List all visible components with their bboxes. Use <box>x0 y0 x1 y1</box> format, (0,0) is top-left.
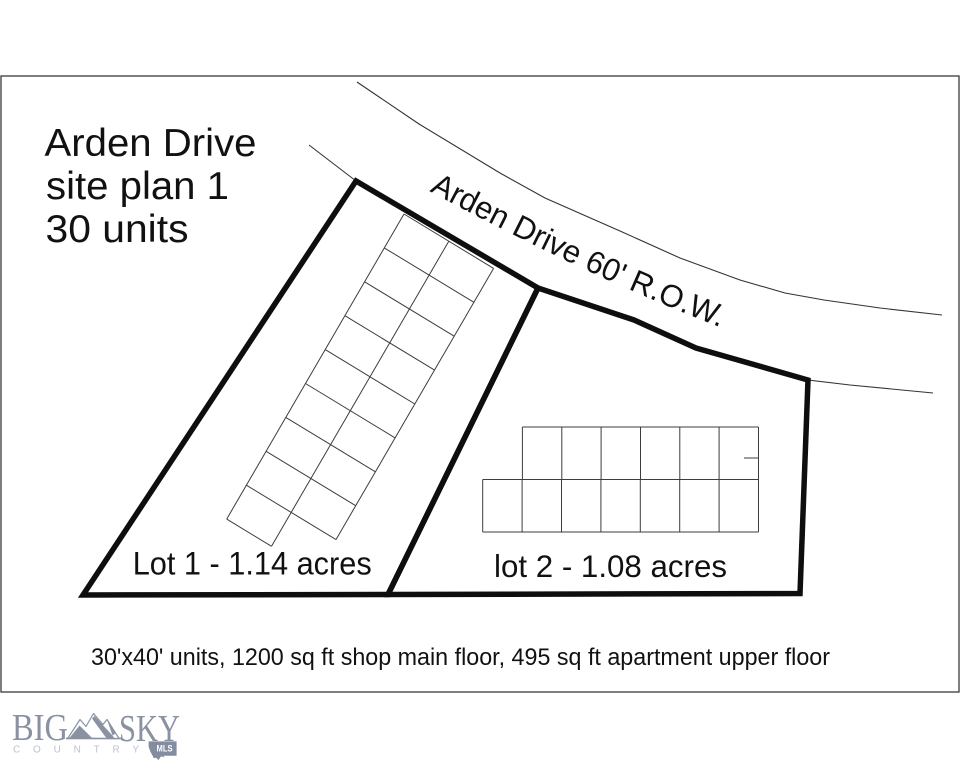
svg-text:BIG: BIG <box>12 707 68 749</box>
svg-text:30 units: 30 units <box>46 208 189 251</box>
svg-text:site plan 1: site plan 1 <box>46 165 229 208</box>
svg-text:30'x40' units, 1200 sq ft shop: 30'x40' units, 1200 sq ft shop main floo… <box>91 644 830 671</box>
svg-text:MLS: MLS <box>157 744 173 754</box>
svg-text:lot 2 - 1.08 acres: lot 2 - 1.08 acres <box>494 548 727 584</box>
svg-text:Arden Drive: Arden Drive <box>45 122 257 165</box>
svg-text:Lot 1 - 1.14 acres: Lot 1 - 1.14 acres <box>133 546 372 582</box>
